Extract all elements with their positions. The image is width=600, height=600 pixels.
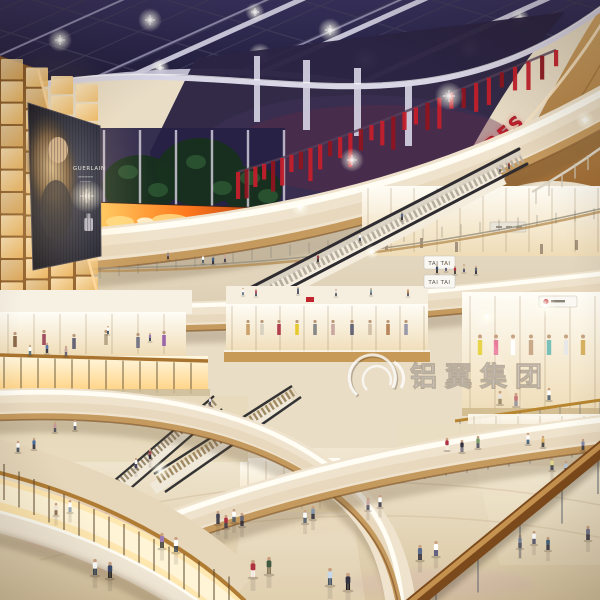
vignette-overlay: [0, 0, 600, 600]
mall-atrium-rendering: THEATRES THEATRES GUERLAIN TAI TAI TAI T…: [0, 0, 600, 600]
mall-atrium-scene: THEATRES THEATRES GUERLAIN TAI TAI TAI T…: [0, 0, 600, 600]
